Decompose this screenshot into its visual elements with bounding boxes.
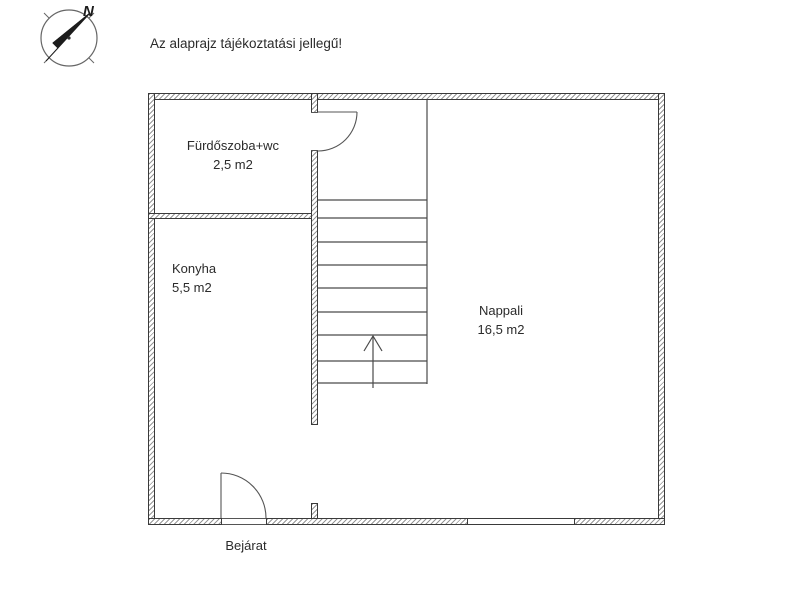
floorplan-image: N Az alaprajz tájékoztatási jellegű!: [0, 0, 800, 600]
room-label-kitchen: Konyha 5,5 m2: [172, 259, 216, 297]
wall-bottom-middle-segment: [266, 518, 468, 525]
room-area: 2,5 m2: [154, 155, 312, 174]
wall-stairs-lower: [311, 150, 318, 425]
wall-right: [658, 93, 665, 525]
room-area: 5,5 m2: [172, 278, 216, 297]
entrance-door-threshold: [222, 518, 266, 525]
stairs-up-arrow-icon: [364, 336, 382, 388]
wall-stub-bottom: [311, 503, 318, 519]
room-label-living-room: Nappali 16,5 m2: [440, 301, 562, 339]
compass-needle: [46, 13, 90, 61]
room-name: Nappali: [440, 301, 562, 320]
plan-linework: [0, 0, 800, 600]
room-name: Fürdőszoba+wc: [154, 136, 312, 155]
room-label-bathroom: Fürdőszoba+wc 2,5 m2: [154, 136, 312, 174]
entrance-door-swing: [221, 473, 266, 518]
entrance-label: Bejárat: [201, 536, 291, 555]
wall-bottom-right-segment: [574, 518, 665, 525]
disclaimer-text: Az alaprajz tájékoztatási jellegű!: [150, 34, 342, 53]
bathroom-door-opening: [311, 112, 318, 151]
room-area: 16,5 m2: [440, 320, 562, 339]
bathroom-door-swing: [318, 112, 357, 151]
wall-top: [148, 93, 665, 100]
compass-north-label: N: [83, 3, 95, 20]
compass-ticks: [44, 13, 94, 63]
window-bottom-wall: [468, 518, 574, 525]
stair-treads: [318, 200, 427, 383]
wall-stairs-upper: [311, 93, 318, 113]
compass-circle: [41, 10, 97, 66]
compass-north-icon: N: [30, 0, 120, 80]
room-name: Konyha: [172, 259, 216, 278]
wall-bathroom-kitchen-divider: [148, 213, 318, 219]
wall-bottom-left-segment: [148, 518, 222, 525]
